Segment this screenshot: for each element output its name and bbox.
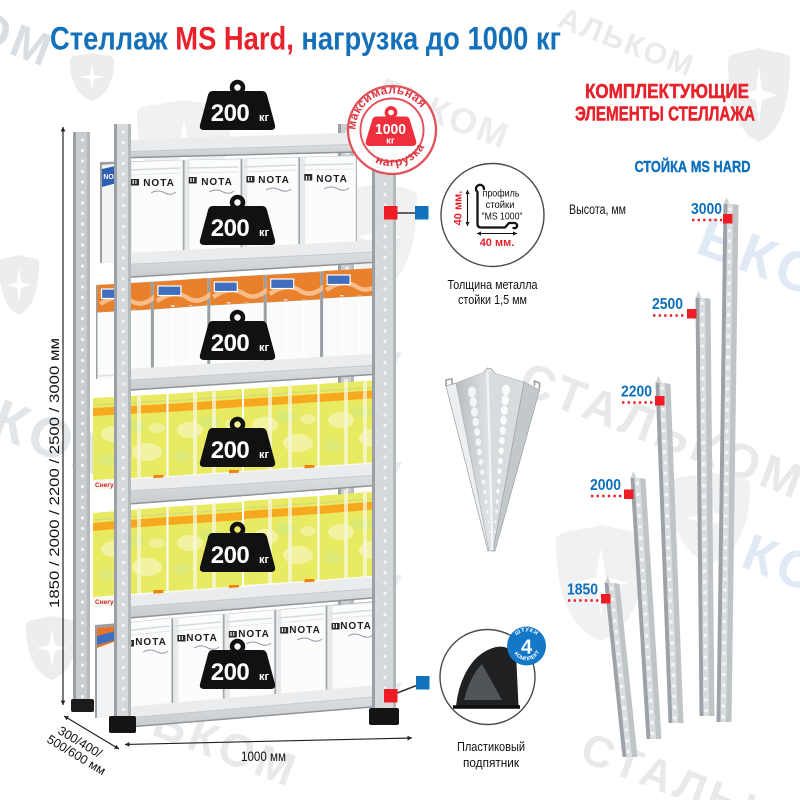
svg-text:"MS 1000": "MS 1000" <box>482 212 523 223</box>
svg-text:NOTA: NOTA <box>186 633 218 644</box>
svg-text:СТАЛЬКОМ: СТАЛЬКОМ <box>574 724 800 800</box>
svg-text:NOTA: NOTA <box>135 637 167 648</box>
svg-text:стойки: стойки <box>486 200 515 211</box>
svg-text:NOTA: NOTA <box>201 177 233 188</box>
svg-text:4: 4 <box>521 637 533 659</box>
svg-text:кг: кг <box>259 554 270 566</box>
svg-text:кг: кг <box>259 342 270 354</box>
svg-text:200: 200 <box>211 330 250 357</box>
svg-text:2000: 2000 <box>590 477 621 494</box>
svg-text:2200: 2200 <box>621 384 652 401</box>
svg-text:КОМПЛЕКТУЮЩИЕ: КОМПЛЕКТУЮЩИЕ <box>585 81 749 103</box>
svg-text:ЭЛЕМЕНТЫ СТЕЛЛАЖА: ЭЛЕМЕНТЫ СТЕЛЛАЖА <box>575 104 755 126</box>
svg-text:кг: кг <box>259 112 270 124</box>
svg-text:NOTA: NOTA <box>258 175 290 186</box>
svg-text:2500: 2500 <box>652 296 683 313</box>
svg-text:200: 200 <box>211 100 250 127</box>
svg-text:СТАЛЬКОМ: СТАЛЬКОМ <box>512 353 800 511</box>
svg-text:Толщина металла: Толщина металла <box>448 277 539 292</box>
svg-text:NOTA: NOTA <box>143 178 175 189</box>
svg-text:40 мм.: 40 мм. <box>480 237 515 249</box>
svg-text:Пластиковый: Пластиковый <box>457 739 525 754</box>
svg-text:NOTA: NOTA <box>238 629 270 640</box>
svg-text:СТОЙКА MS HARD: СТОЙКА MS HARD <box>635 158 751 176</box>
svg-text:кг: кг <box>386 136 395 147</box>
svg-text:кг: кг <box>259 671 270 683</box>
svg-text:АЛЬКОМ: АЛЬКОМ <box>553 2 699 84</box>
svg-text:стойки 1,5 мм: стойки 1,5 мм <box>458 292 527 307</box>
svg-text:200: 200 <box>211 215 250 242</box>
svg-text:КОМ: КОМ <box>735 523 800 623</box>
svg-text:200: 200 <box>211 659 250 686</box>
svg-text:кг: кг <box>259 449 270 461</box>
svg-text:200: 200 <box>211 542 250 569</box>
svg-text:NOTA: NOTA <box>316 174 348 185</box>
svg-text:3000: 3000 <box>691 201 722 218</box>
svg-text:NOTA: NOTA <box>289 625 321 636</box>
svg-text:1000 мм: 1000 мм <box>241 748 286 764</box>
svg-text:200: 200 <box>211 437 250 464</box>
svg-text:1850: 1850 <box>567 582 598 599</box>
svg-text:NOTA: NOTA <box>340 621 372 632</box>
svg-text:1850 / 2000 / 2200 / 2500 / 30: 1850 / 2000 / 2200 / 2500 / 3000 мм <box>46 338 62 608</box>
svg-text:Высота, мм: Высота, мм <box>569 202 626 217</box>
svg-text:кг: кг <box>259 227 270 239</box>
svg-text:40 мм.: 40 мм. <box>453 191 465 226</box>
svg-text:профиль: профиль <box>483 188 520 200</box>
svg-text:Стеллаж MS Hard, нагрузка до 1: Стеллаж MS Hard, нагрузка до 1000 кг <box>50 21 561 57</box>
svg-text:подпятник: подпятник <box>463 755 519 770</box>
